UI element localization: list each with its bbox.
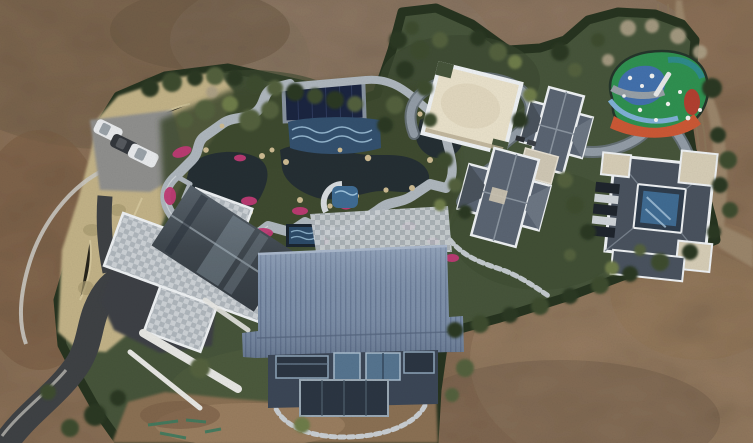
aerial-photo bbox=[0, 0, 753, 443]
film-grain-overlay bbox=[0, 0, 753, 443]
aerial-photo-canvas bbox=[0, 0, 753, 443]
